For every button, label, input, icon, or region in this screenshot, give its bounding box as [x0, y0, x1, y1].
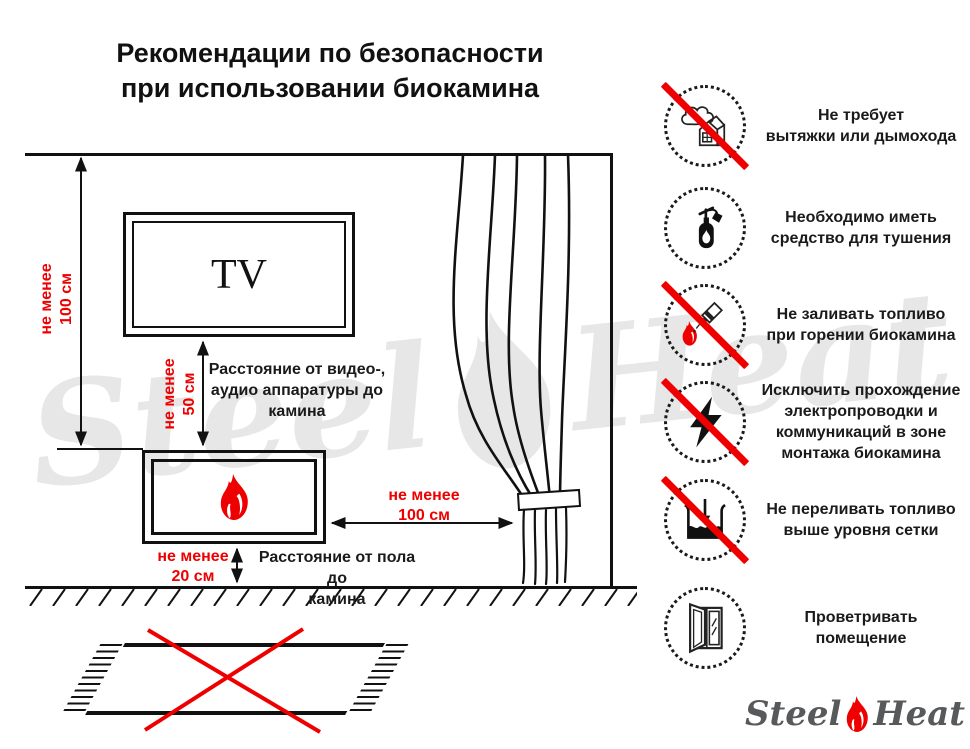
tv-box: TV [123, 212, 355, 337]
carpet-fringe-right [348, 644, 409, 714]
rule-ventilate: Проветривать помещение [664, 587, 964, 669]
rule-text: Не заливать топливо при горении биокамин… [758, 304, 964, 346]
page-title: Рекомендации по безопасности при использ… [0, 36, 660, 106]
rule-circle [664, 587, 746, 669]
flame-icon [218, 473, 250, 521]
rule-circle [664, 187, 746, 269]
dim-label-floor: не менее 20 см [152, 547, 234, 587]
rule-text: Проветривать помещение [758, 607, 964, 649]
rule-text: Исключить прохождение электропроводки и … [758, 380, 964, 464]
caption-floor-distance: Расстояние от пола до камина [251, 547, 423, 610]
brand-logo: Steel Heat [745, 688, 965, 740]
rule-circle [664, 284, 746, 366]
carpet [85, 643, 385, 715]
fireplace-level-line [57, 448, 143, 450]
rule-circle [664, 381, 746, 463]
logo-steel: Steel [745, 694, 841, 734]
fireplace-firebox [151, 459, 317, 535]
rule-extinguisher: Необходимо иметь средство для тушения [664, 187, 964, 269]
infographic-page: Steel Heat Рекомендации по безопасности … [0, 0, 970, 749]
rule-no-overfill: Не переливать топливо выше уровня сетки [664, 479, 964, 561]
dim-label-ceiling: не менее 100 см [37, 251, 77, 347]
rule-no-chimney: Не требует вытяжки или дымохода [664, 85, 964, 167]
caption-tv-distance: Расстояние от видео-, аудио аппаратуры д… [207, 359, 387, 422]
extinguisher-icon [677, 200, 733, 256]
rule-text: Не требует вытяжки или дымохода [758, 105, 964, 147]
rule-circle [664, 85, 746, 167]
tv-label: TV [211, 251, 267, 299]
carpet-fringe-left [62, 644, 123, 714]
flame-icon [845, 691, 869, 737]
rule-circle [664, 479, 746, 561]
fireplace-box [142, 450, 326, 544]
dim-label-tv: не менее 50 см [160, 346, 200, 442]
rule-text: Не переливать топливо выше уровня сетки [758, 499, 964, 541]
rule-text: Необходимо иметь средство для тушения [758, 207, 964, 249]
prohibition-cross-icon [661, 378, 749, 466]
logo-heat: Heat [874, 694, 966, 734]
rule-no-wiring: Исключить прохождение электропроводки и … [664, 380, 964, 464]
prohibition-cross-icon [661, 281, 749, 369]
prohibition-cross-icon [661, 82, 749, 170]
ventilate-icon [677, 600, 733, 656]
prohibition-cross-icon [661, 476, 749, 564]
dim-label-curtain: не менее 100 см [368, 486, 480, 526]
curtain-tie [518, 490, 580, 510]
tv-screen: TV [132, 221, 346, 328]
rule-no-refuel: Не заливать топливо при горении биокамин… [664, 284, 964, 366]
